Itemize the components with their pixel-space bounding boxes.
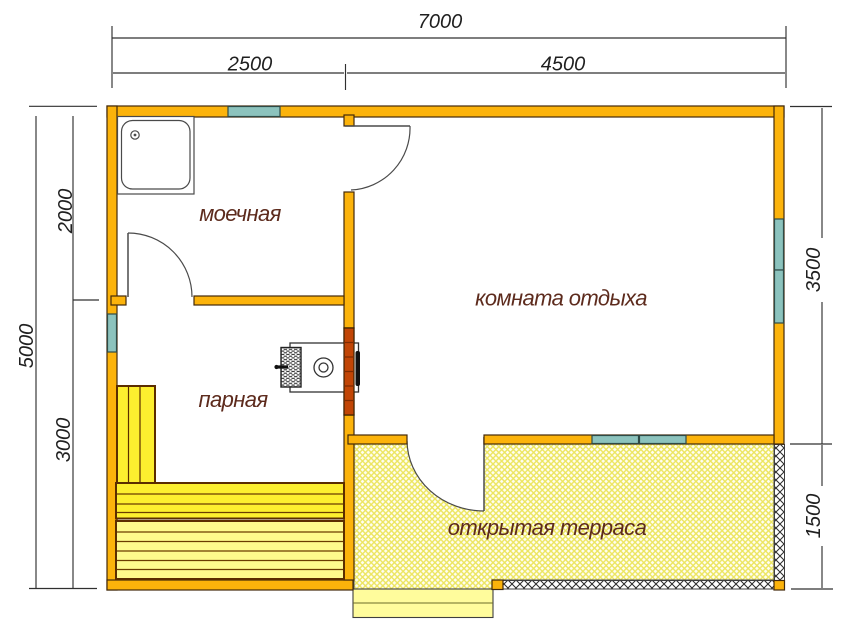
svg-text:комната отдыха: комната отдыха xyxy=(475,286,647,311)
svg-text:3000: 3000 xyxy=(53,418,75,463)
svg-text:моечная: моечная xyxy=(199,201,281,226)
svg-text:2500: 2500 xyxy=(227,54,273,76)
svg-text:3500: 3500 xyxy=(803,248,825,293)
svg-text:7000: 7000 xyxy=(418,11,463,33)
svg-text:1500: 1500 xyxy=(803,494,825,539)
svg-text:парная: парная xyxy=(198,387,268,412)
svg-text:5000: 5000 xyxy=(16,324,38,369)
svg-text:4500: 4500 xyxy=(541,54,586,76)
svg-text:2000: 2000 xyxy=(55,189,77,235)
svg-text:открытая терраса: открытая терраса xyxy=(448,515,647,540)
